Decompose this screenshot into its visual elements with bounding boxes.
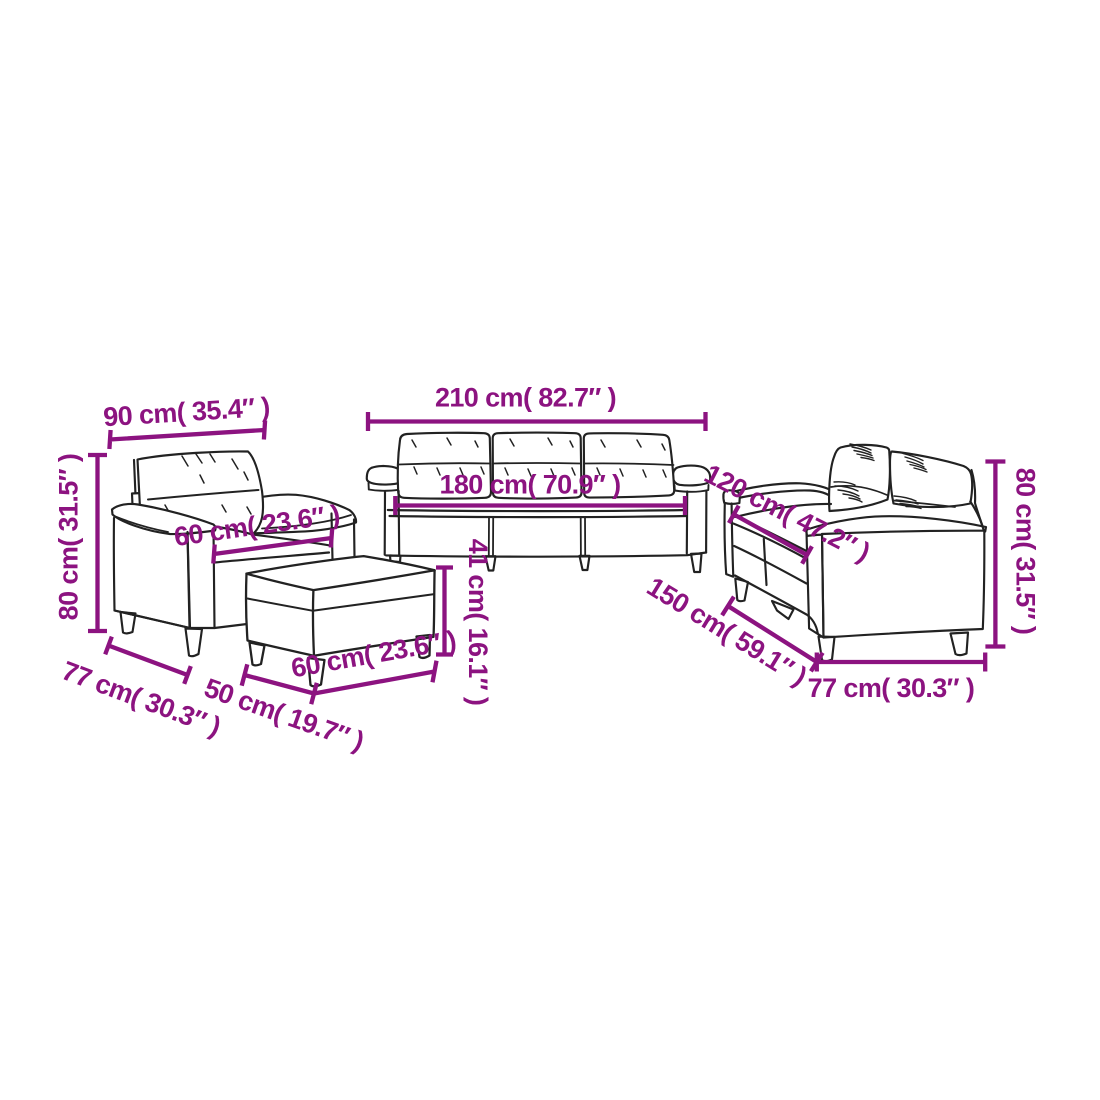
svg-text:80 cm( 31.5″ ): 80 cm( 31.5″ ) xyxy=(1011,468,1041,635)
svg-text:41 cm( 16.1″ ): 41 cm( 16.1″ ) xyxy=(463,539,493,706)
svg-text:210 cm( 82.7″ ): 210 cm( 82.7″ ) xyxy=(435,383,616,413)
svg-text:180 cm( 70.9″ ): 180 cm( 70.9″ ) xyxy=(439,470,620,500)
svg-text:77 cm( 30.3″ ): 77 cm( 30.3″ ) xyxy=(808,673,975,703)
svg-text:80 cm( 31.5″ ): 80 cm( 31.5″ ) xyxy=(54,454,84,621)
